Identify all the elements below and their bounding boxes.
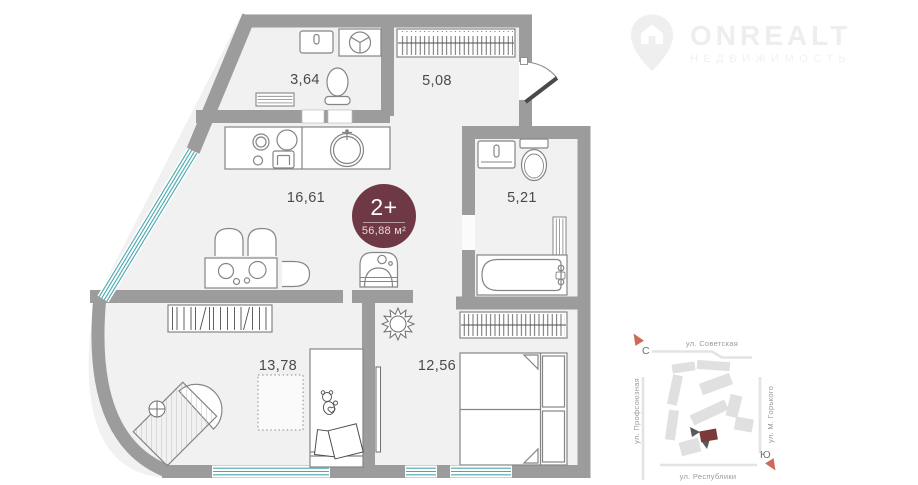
bathtub-icon	[477, 255, 567, 295]
room-area-label: 3,64	[290, 72, 320, 88]
toilet-icon	[325, 68, 350, 105]
room-area-label: 5,08	[422, 73, 452, 89]
location-minimap: С Ю ул. Советская ул. Профсоюзная ул. М.…	[622, 331, 787, 483]
compass-north-label: С	[642, 345, 650, 357]
towel-radiator-icon	[553, 217, 566, 257]
area-badge: 2+ 56,88 м²	[352, 184, 416, 248]
room-area-label: 13,78	[259, 358, 297, 374]
street-label-top: ул. Советская	[686, 339, 738, 348]
logo-title: ONREALT	[690, 21, 851, 52]
badge-total-area: 56,88 м²	[362, 225, 406, 237]
room-area-label: 12,56	[418, 358, 456, 374]
north-arrow-icon	[629, 331, 644, 346]
dining-table-icon	[205, 258, 277, 288]
desk-lamp-icon	[149, 401, 165, 417]
double-bed-icon	[460, 353, 567, 465]
vent-fan-icon	[339, 29, 381, 56]
room-area-label: 16,61	[287, 190, 325, 206]
rug-icon	[258, 375, 303, 430]
floorplan-page: 3,64 5,08 16,61 5,21 13,78 12,56 2+ 56,8…	[0, 0, 918, 485]
badge-rooms-count: 2+	[370, 196, 397, 219]
interior-door-icon	[376, 367, 381, 452]
compass-south-label: Ю	[760, 449, 771, 461]
radiator-icon	[256, 93, 294, 106]
wardrobe-icon	[397, 29, 515, 57]
house-pin-icon	[627, 13, 677, 73]
wardrobe-bedroom-icon	[460, 312, 567, 338]
kitchen-counter	[225, 127, 390, 169]
toilet-icon-2	[520, 139, 548, 181]
street-label-left: ул. Профсоюзная	[632, 378, 641, 444]
map-buildings	[665, 360, 754, 456]
street-label-right: ул. М. Горького	[766, 386, 775, 443]
badge-divider	[363, 222, 405, 223]
bathroom-sink-icon	[478, 141, 515, 168]
window-bottom-bedroom	[450, 466, 512, 478]
window-bottom-corridor	[405, 466, 437, 478]
bookshelf-icon	[168, 305, 272, 332]
room-area-label: 5,21	[507, 190, 537, 206]
vanity-sink-icon	[360, 253, 398, 288]
dining-chair-side-icon	[282, 262, 310, 287]
washing-machine-icon	[300, 31, 333, 53]
logo-subtitle: НЕДВИЖИМОСТЬ	[690, 53, 851, 65]
street-label-bottom: ул. Республики	[680, 472, 737, 481]
logo: ONREALT НЕДВИЖИМОСТЬ	[627, 13, 851, 73]
